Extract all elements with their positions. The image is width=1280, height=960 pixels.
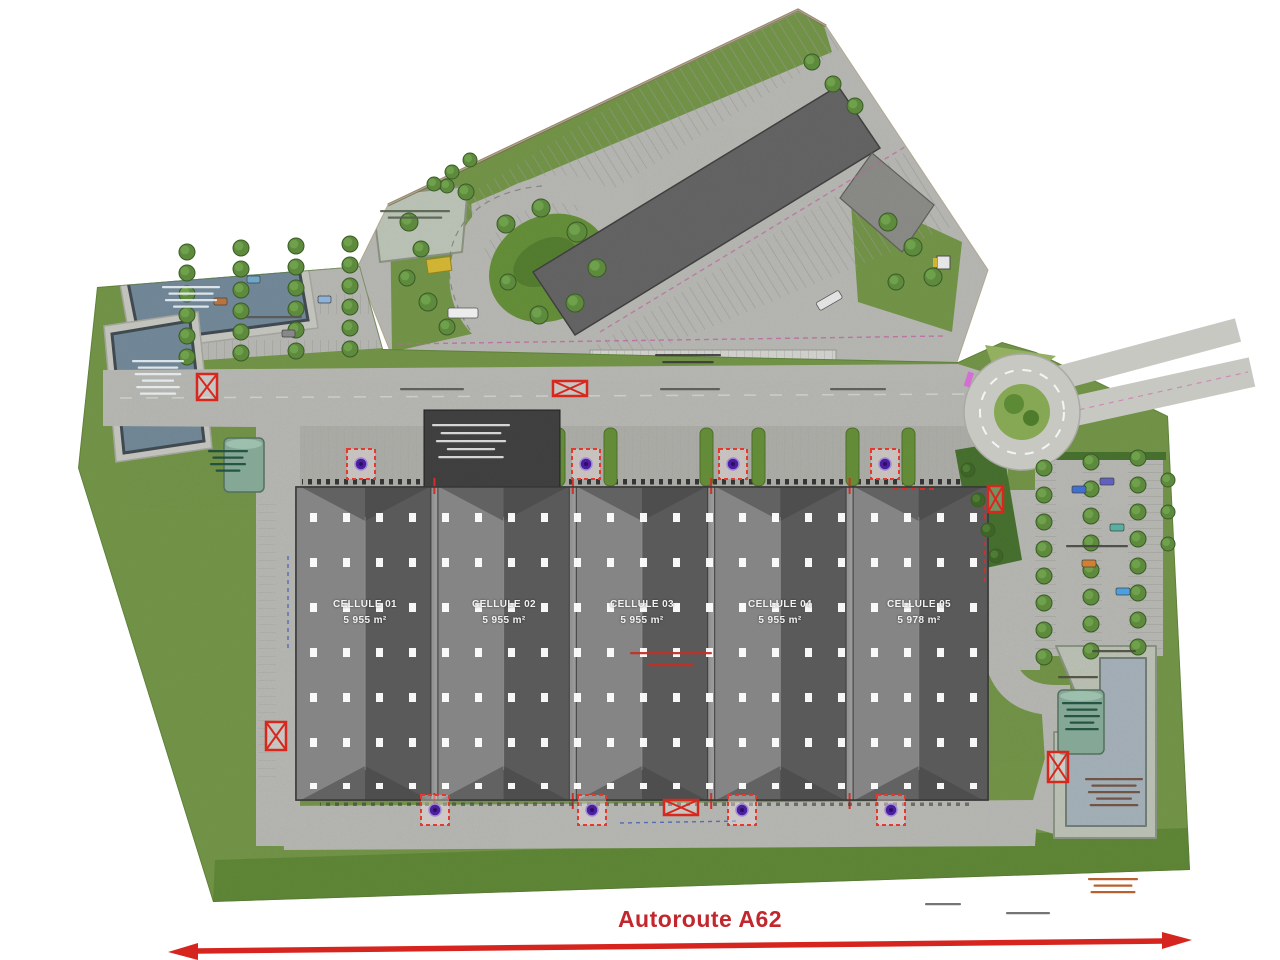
car-icon (1116, 588, 1130, 595)
car-icon (282, 330, 295, 337)
cell-name: CELLULE 04 (748, 599, 812, 610)
cell-name: CELLULE 02 (472, 599, 536, 610)
gate-cross-icon (266, 722, 286, 750)
cell-area: 5 955 m² (482, 615, 525, 626)
gate-cross-icon (553, 381, 587, 396)
gate-cross-icon (197, 374, 217, 400)
cell-label-2: CELLULE 02 5 955 m² (472, 597, 536, 628)
cell-label-4: CELLULE 04 5 955 m² (748, 597, 812, 628)
truck-icon (448, 308, 478, 318)
cell-label-5: CELLULE 05 5 978 m² (887, 597, 951, 628)
car-icon (318, 296, 331, 303)
car-icon (1072, 486, 1086, 493)
cell-name: CELLULE 05 (887, 599, 951, 610)
sprinkler-marker-icon (347, 449, 375, 479)
gate-cross-icon (1048, 752, 1068, 782)
upper-site (340, 0, 1000, 380)
site-plan-drawing (0, 0, 1280, 960)
autoroute-arrow (168, 932, 1192, 960)
sprinkler-marker-icon (578, 795, 606, 825)
site-plan-canvas: CELLULE 01 5 955 m² CELLULE 02 5 955 m² … (0, 0, 1280, 960)
car-icon (1082, 560, 1096, 567)
sprinkler-marker-icon (421, 795, 449, 825)
sprinkler-marker-icon (877, 795, 905, 825)
car-icon (1100, 478, 1114, 485)
gate-cross-icon (664, 800, 698, 815)
sprinkler-marker-icon (572, 449, 600, 479)
cell-area: 5 955 m² (343, 615, 386, 626)
cell-area: 5 978 m² (897, 615, 940, 626)
sprinkler-marker-icon (728, 795, 756, 825)
gate-cross-icon (988, 486, 1003, 512)
cell-label-3: CELLULE 03 5 955 m² (610, 597, 674, 628)
cell-name: CELLULE 01 (333, 599, 397, 610)
car-icon (1110, 524, 1124, 531)
car-icon (247, 276, 260, 283)
cell-label-1: CELLULE 01 5 955 m² (333, 597, 397, 628)
cell-area: 5 955 m² (620, 615, 663, 626)
autoroute-label: Autoroute A62 (618, 906, 782, 933)
sprinkler-marker-icon (719, 449, 747, 479)
sprinkler-marker-icon (871, 449, 899, 479)
cell-name: CELLULE 03 (610, 599, 674, 610)
cell-area: 5 955 m² (758, 615, 801, 626)
warehouse-building (296, 478, 988, 809)
